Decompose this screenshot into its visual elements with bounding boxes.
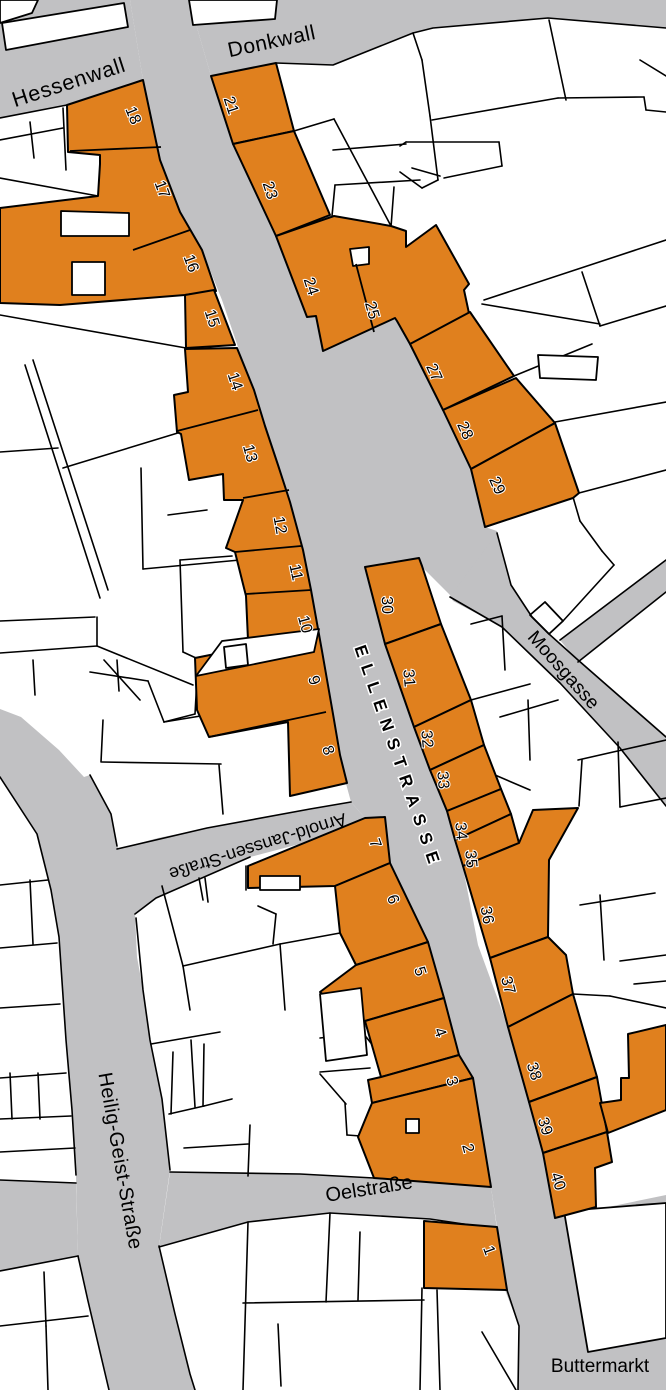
svg-text:32: 32 xyxy=(417,730,435,749)
svg-text:12: 12 xyxy=(270,515,290,536)
svg-text:31: 31 xyxy=(399,669,417,688)
svg-text:34: 34 xyxy=(451,822,469,841)
svg-text:33: 33 xyxy=(433,771,451,790)
svg-text:35: 35 xyxy=(461,850,479,869)
svg-text:36: 36 xyxy=(477,905,497,926)
svg-text:Buttermarkt: Buttermarkt xyxy=(551,1356,650,1377)
svg-text:30: 30 xyxy=(378,596,396,614)
